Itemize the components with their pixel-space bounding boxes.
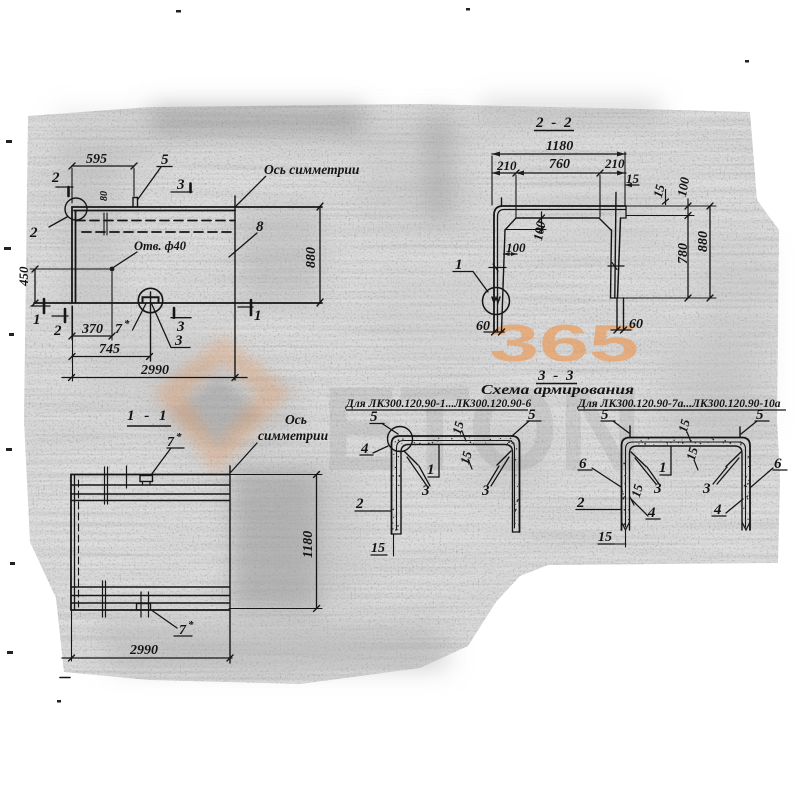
svg-text:6: 6 [774, 456, 782, 472]
svg-text:7: 7 [179, 623, 187, 638]
svg-text:595: 595 [86, 152, 107, 167]
svg-text:2990: 2990 [129, 643, 158, 658]
svg-text:*: * [188, 619, 194, 631]
svg-text:1: 1 [33, 312, 41, 328]
svg-text:15: 15 [371, 541, 385, 556]
svg-text:3: 3 [176, 177, 185, 193]
svg-text:880: 880 [304, 247, 319, 268]
svg-text:4: 4 [360, 441, 369, 457]
svg-text:5: 5 [756, 407, 764, 423]
svg-text:*: * [124, 318, 130, 330]
svg-text:симметрии: симметрии [258, 428, 329, 443]
svg-text:3: 3 [421, 483, 430, 499]
svg-text:1: 1 [427, 462, 435, 478]
svg-text:210: 210 [604, 156, 625, 171]
svg-text:1180: 1180 [546, 139, 573, 154]
svg-text:7: 7 [167, 435, 175, 450]
svg-text:760: 760 [549, 157, 570, 172]
svg-text:5: 5 [161, 152, 169, 168]
svg-text:Ось симметрии: Ось симметрии [264, 162, 360, 177]
svg-text:60: 60 [476, 319, 490, 334]
svg-text:6: 6 [579, 456, 587, 472]
svg-text:2 - 2: 2 - 2 [535, 115, 574, 131]
svg-text:1: 1 [254, 308, 262, 324]
svg-text:60: 60 [629, 317, 643, 332]
svg-text:370: 370 [81, 322, 103, 337]
svg-text:2: 2 [53, 323, 62, 339]
svg-text:8: 8 [256, 219, 264, 235]
svg-text:745: 745 [99, 342, 120, 357]
svg-text:Отв. ф40: Отв. ф40 [134, 239, 187, 253]
svg-text:7: 7 [115, 322, 123, 337]
svg-text:*: * [176, 431, 182, 443]
svg-text:1: 1 [455, 257, 463, 273]
svg-text:5: 5 [528, 407, 536, 423]
svg-text:3: 3 [174, 333, 183, 349]
svg-text:15: 15 [598, 530, 612, 545]
svg-text:Схема армирования: Схема армирования [481, 383, 634, 398]
svg-text:Ось: Ось [285, 412, 307, 427]
svg-text:80: 80 [99, 191, 110, 201]
svg-text:15: 15 [626, 171, 640, 186]
svg-text:100: 100 [506, 240, 526, 255]
svg-text:3: 3 [481, 483, 490, 499]
svg-text:3: 3 [702, 481, 711, 497]
svg-text:450: 450 [16, 266, 31, 287]
svg-text:4: 4 [647, 505, 656, 521]
svg-text:1180: 1180 [301, 531, 316, 558]
svg-text:4: 4 [713, 502, 722, 518]
svg-text:1: 1 [659, 460, 667, 476]
svg-text:2: 2 [51, 170, 60, 186]
svg-text:2: 2 [355, 496, 364, 512]
svg-text:780: 780 [676, 243, 691, 264]
svg-text:880: 880 [696, 231, 711, 252]
svg-text:210: 210 [496, 158, 517, 173]
svg-text:2990: 2990 [140, 363, 169, 378]
svg-text:5: 5 [370, 409, 378, 425]
svg-text:3: 3 [653, 481, 662, 497]
svg-text:3 - 3: 3 - 3 [537, 368, 576, 384]
svg-text:2: 2 [576, 495, 585, 511]
svg-text:5: 5 [601, 407, 609, 423]
svg-text:1 - 1: 1 - 1 [127, 408, 170, 424]
svg-text:2: 2 [29, 225, 38, 241]
